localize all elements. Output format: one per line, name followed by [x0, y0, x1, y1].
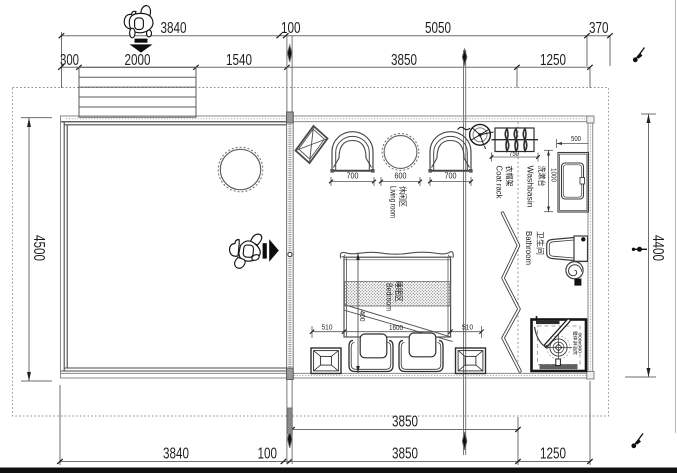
- svg-text:100: 100: [281, 20, 301, 37]
- svg-text:整体淋浴房: 整体淋浴房: [572, 331, 579, 355]
- svg-text:Washbasin: Washbasin: [526, 166, 535, 208]
- svg-text:休闲区: 休闲区: [398, 186, 408, 207]
- svg-text:1250: 1250: [540, 446, 566, 463]
- svg-text:4500: 4500: [30, 235, 47, 261]
- svg-text:900x900: 900x900: [578, 333, 583, 354]
- svg-text:700: 700: [445, 171, 457, 181]
- svg-text:1540: 1540: [226, 52, 252, 69]
- svg-text:500: 500: [571, 136, 581, 143]
- svg-text:100: 100: [258, 446, 278, 463]
- svg-text:Bedroom: Bedroom: [385, 283, 394, 311]
- svg-text:睡眠区: 睡眠区: [394, 281, 403, 302]
- svg-text:3840: 3840: [161, 20, 187, 37]
- svg-text:400: 400: [358, 311, 365, 322]
- svg-text:4400: 4400: [649, 235, 666, 261]
- svg-text:Coat rack: Coat rack: [495, 166, 504, 200]
- svg-text:370: 370: [589, 20, 609, 37]
- svg-text:600: 600: [395, 171, 407, 181]
- svg-text:3850: 3850: [392, 446, 418, 463]
- svg-text:3850: 3850: [391, 52, 417, 69]
- svg-text:1250: 1250: [540, 52, 566, 69]
- svg-text:Bathroom: Bathroom: [524, 231, 533, 265]
- svg-text:700: 700: [347, 171, 359, 181]
- svg-text:卫生间: 卫生间: [536, 231, 546, 255]
- svg-text:衣帽架: 衣帽架: [505, 166, 515, 187]
- svg-text:洗漱台: 洗漱台: [537, 166, 547, 187]
- svg-text:2000: 2000: [125, 52, 151, 69]
- svg-text:750: 750: [509, 151, 519, 158]
- svg-text:Living room: Living room: [389, 186, 398, 218]
- svg-text:510: 510: [322, 325, 333, 332]
- svg-text:3840: 3840: [163, 446, 189, 463]
- svg-text:3850: 3850: [392, 414, 418, 431]
- svg-text:1000: 1000: [550, 168, 557, 182]
- svg-text:5050: 5050: [425, 20, 451, 37]
- svg-text:510: 510: [462, 325, 473, 332]
- svg-text:300: 300: [60, 52, 79, 69]
- svg-text:1600: 1600: [389, 325, 403, 332]
